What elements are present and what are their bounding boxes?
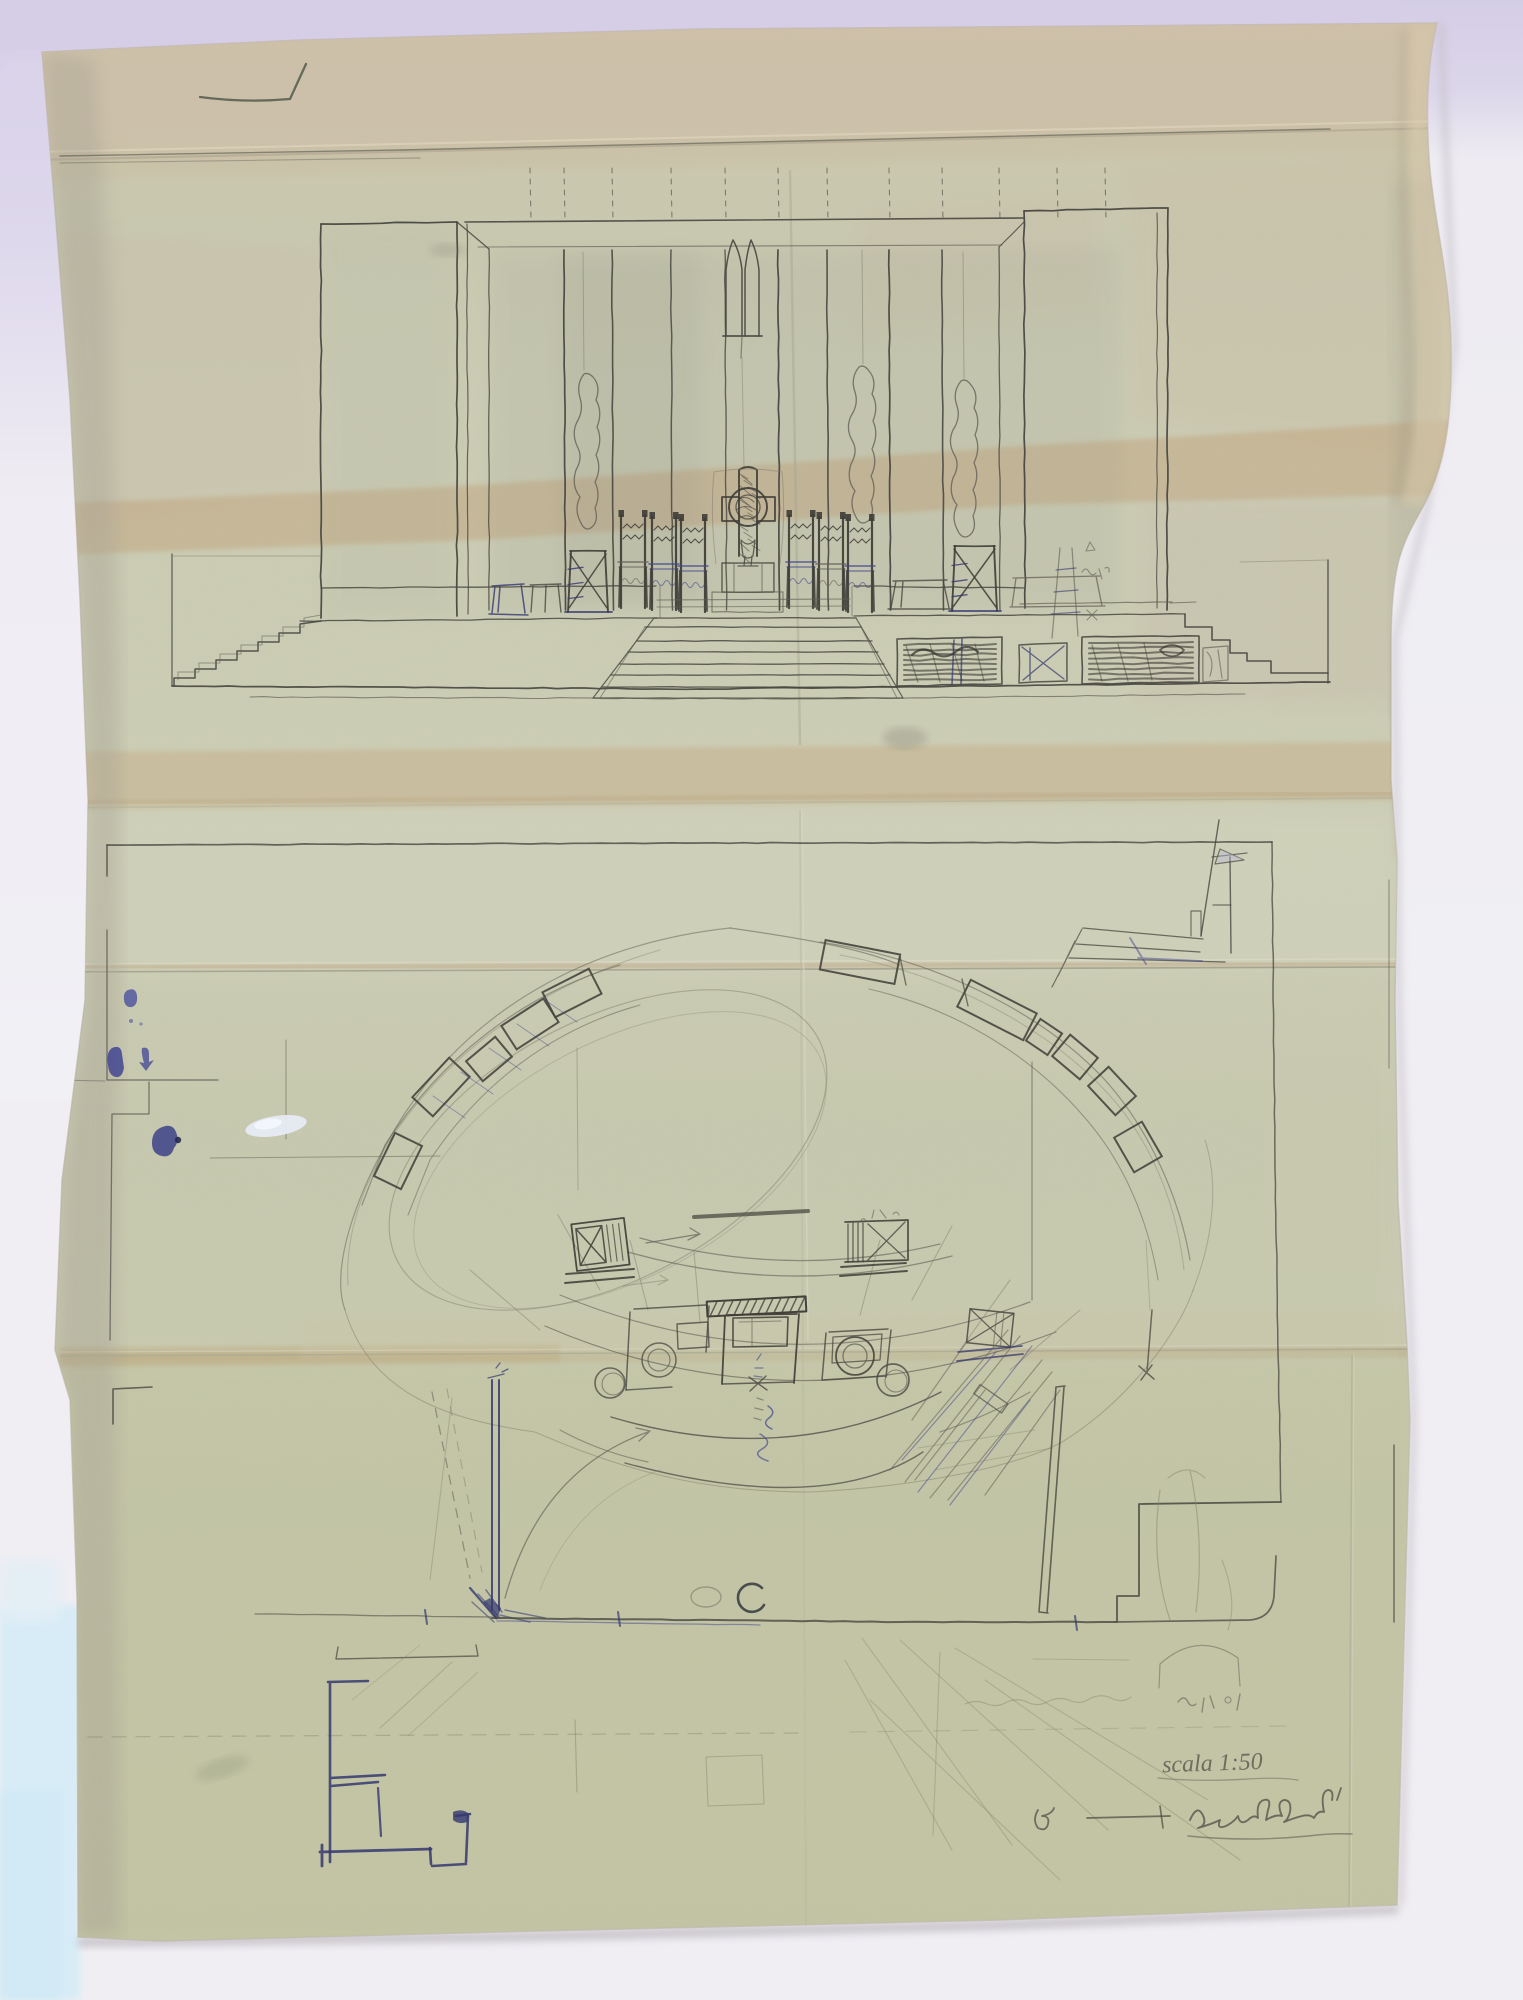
svg-text:scala 1:50: scala 1:50 [1162,1749,1264,1778]
